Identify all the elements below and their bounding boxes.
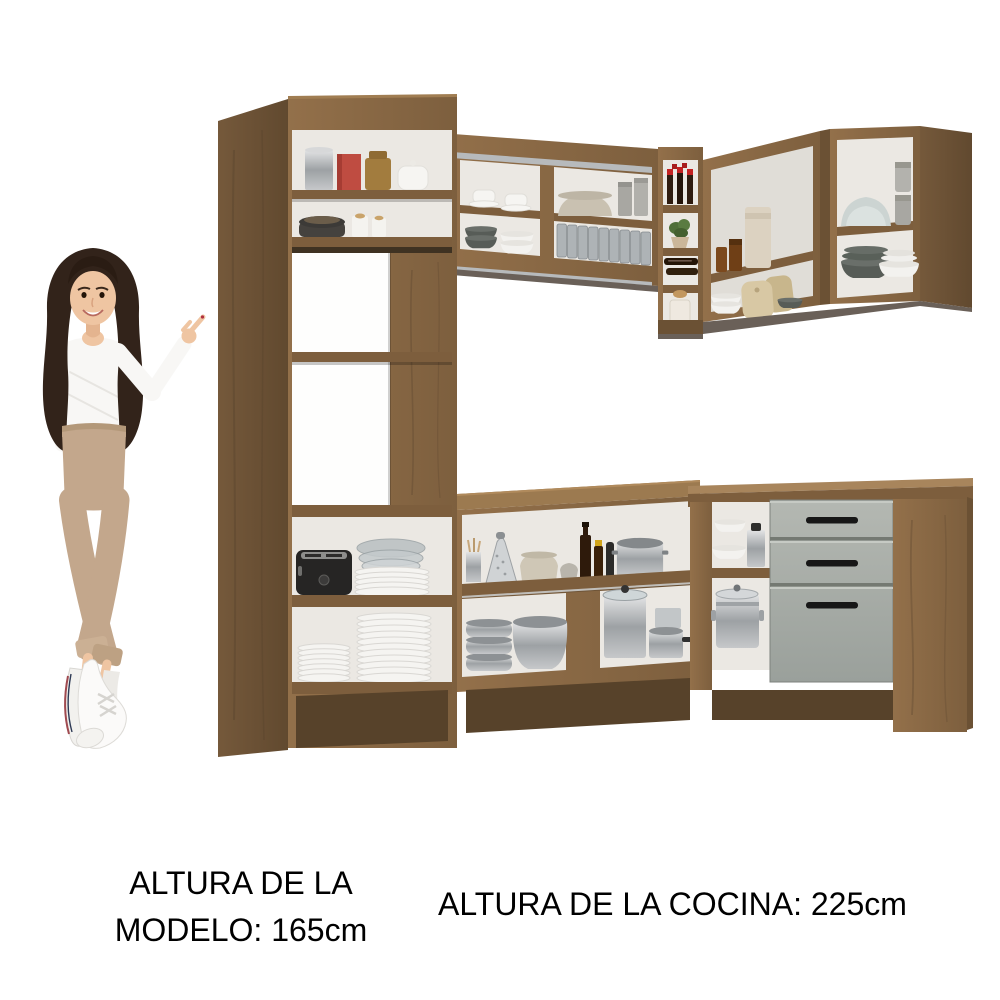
plate-stack-upper: [355, 567, 429, 597]
gray-and-white-bowl-stacks: [841, 246, 919, 278]
wine-bottles-standing: [667, 163, 693, 204]
toaster: [296, 550, 352, 595]
large-pot: [612, 538, 669, 577]
model-height-line2: MODELO: 165cm: [88, 907, 394, 954]
plinth: [712, 690, 893, 720]
base-cabinet-corner: [688, 478, 973, 732]
side-panel-right: [920, 126, 972, 308]
model-height-line1: ALTURA DE LA: [88, 860, 394, 907]
tall-cabinet: [218, 94, 457, 757]
drawer-handle-bottom: [806, 602, 858, 609]
wall-cabinet-right: [703, 126, 972, 334]
model-height-caption: ALTURA DE LA MODELO: 165cm: [88, 860, 394, 954]
model-woman: [43, 248, 204, 751]
fingernail: [201, 315, 204, 318]
product-image: ALTURA DE LA MODELO: 165cm ALTURA DE LA …: [0, 0, 1000, 1000]
plinth: [296, 690, 448, 748]
drawer-handle-middle: [806, 560, 858, 567]
wine-rack-tower: [658, 147, 703, 339]
steel-canister: [711, 585, 764, 649]
side-panel-right-base: [893, 499, 967, 732]
wall-cabinet-middle: [440, 133, 658, 292]
base-cabinet-middle: [457, 480, 700, 733]
kitchen-height-caption: ALTURA DE LA COCINA: 225cm: [438, 886, 978, 923]
drawer-unit: [770, 500, 893, 682]
trousers: [62, 423, 126, 667]
kitchen-product-render: [0, 0, 1000, 1000]
sneakers: [65, 660, 126, 752]
drawer-handle-top: [806, 517, 858, 524]
